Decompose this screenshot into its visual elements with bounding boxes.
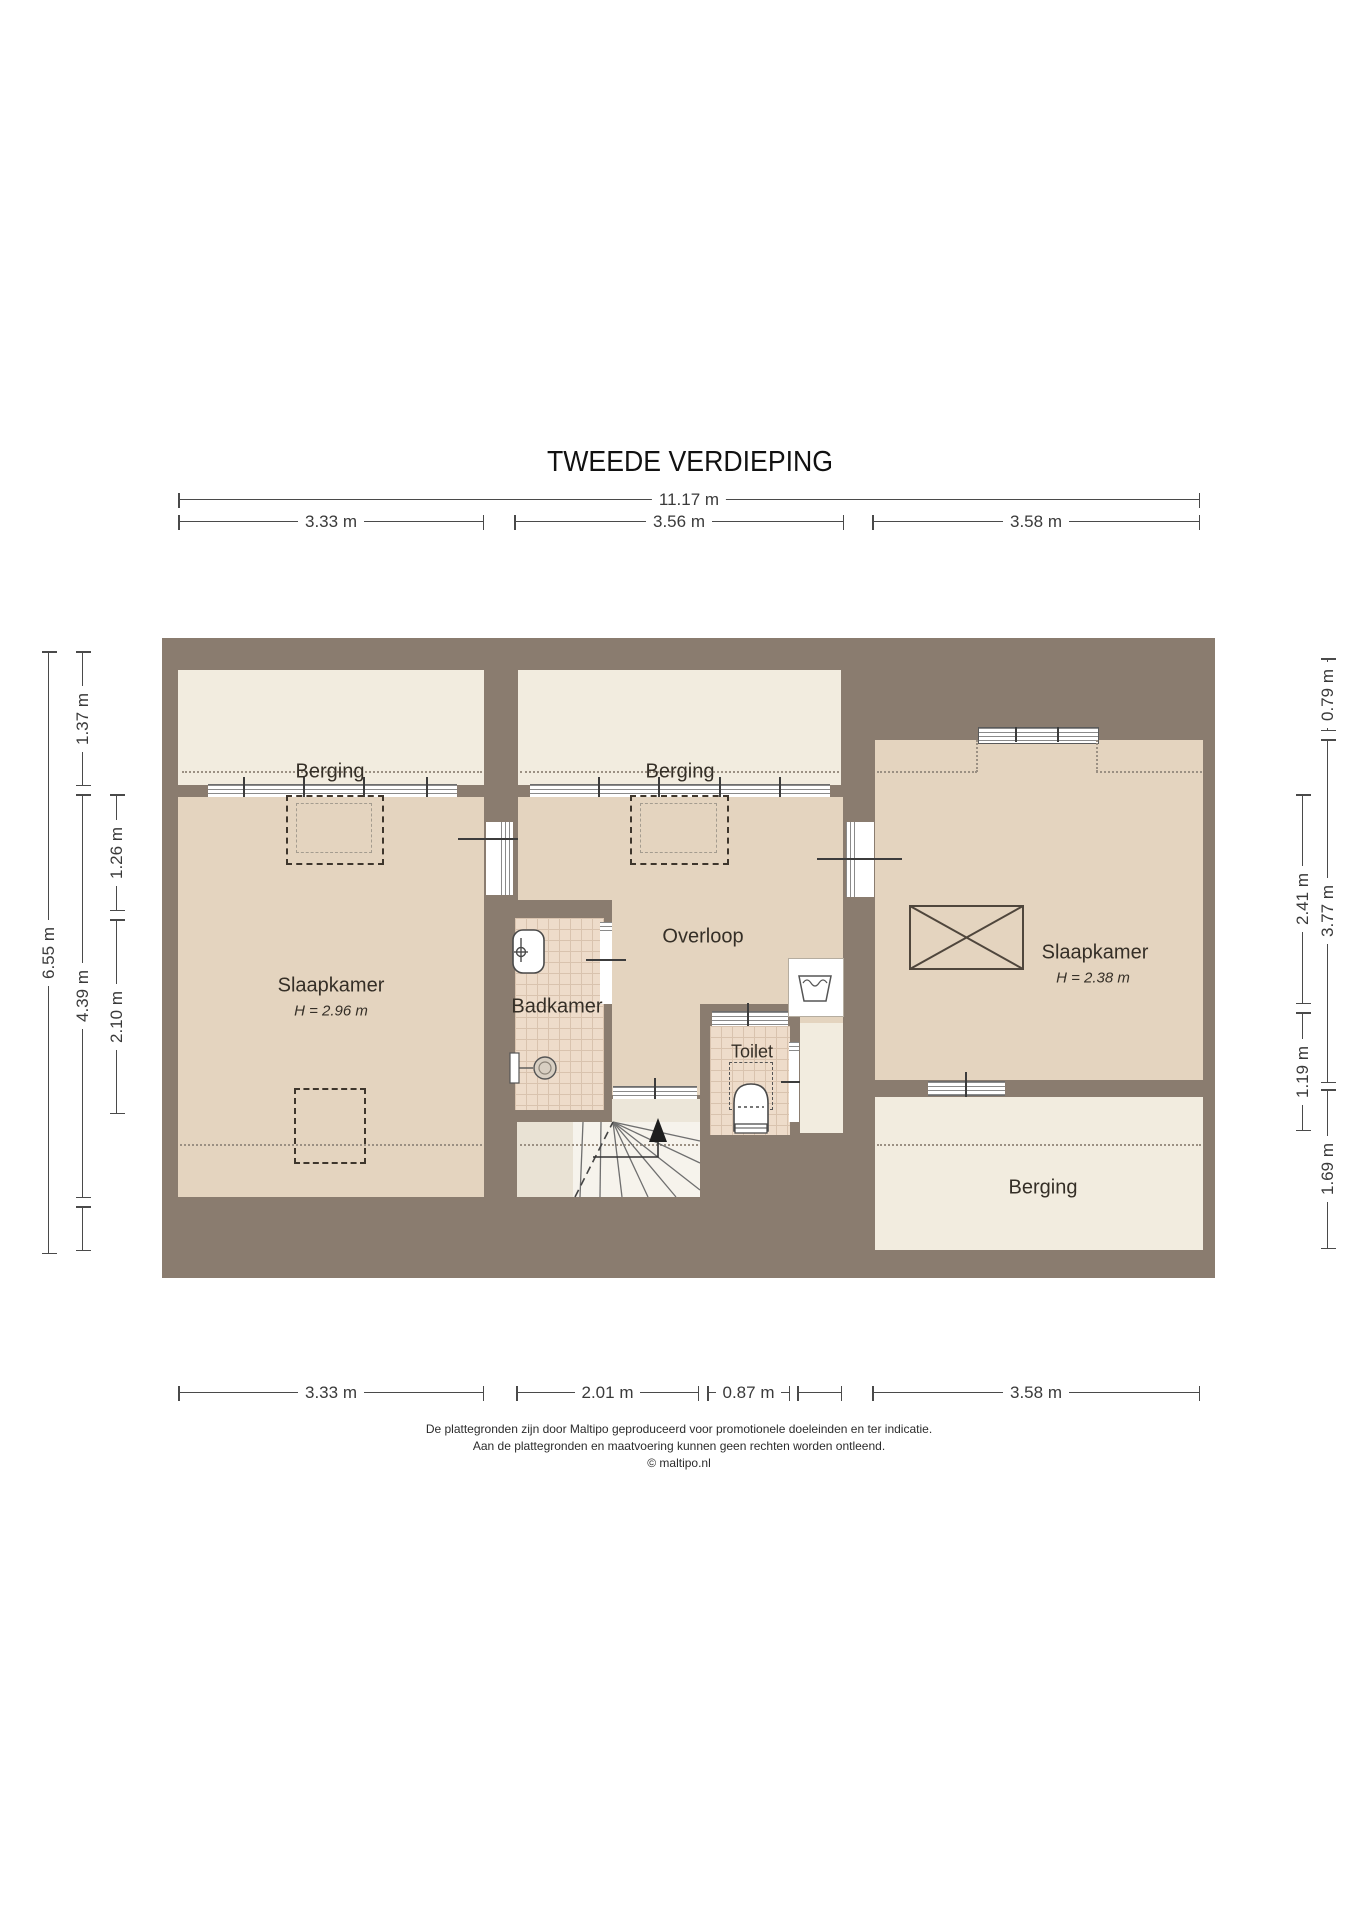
roof-window-x-icon [910,906,1023,969]
footer-disclaimer-1: De plattegronden zijn door Maltipo gepro… [129,1422,1229,1436]
label-slaapkamer-right: Slaapkamer [1042,942,1149,965]
dim-top-total: 11.17 m [179,499,1199,500]
dim-left-1: 1.37 m [82,652,83,785]
label-berging-left: Berging [296,761,365,784]
laundry-symbol-icon [799,976,831,1001]
dim-right-5: 1.19 m [1302,1013,1303,1130]
label-slaapkamer-right-height: H = 2.38 m [1056,970,1130,987]
dim-bottom-1: 3.33 m [179,1392,483,1393]
stair-treads-icon [580,1122,700,1197]
dim-bottom-2: 2.01 m [517,1392,698,1393]
dim-left-total: 6.55 m [48,652,49,1253]
dim-bottom-3: 0.87 m [708,1392,789,1393]
label-badkamer: Badkamer [511,996,602,1019]
footer-disclaimer-2: Aan de plattegronden en maatvoering kunn… [129,1439,1229,1453]
dim-left-3 [82,1207,83,1250]
label-berging-mid: Berging [646,761,715,784]
label-slaapkamer-left: Slaapkamer [278,975,385,998]
shower-icon [510,1053,556,1083]
label-slaapkamer-left-height: H = 2.96 m [294,1003,368,1020]
floorplan-page: TWEEDE VERDIEPING [0,0,1358,1920]
dim-left-4: 1.26 m [116,795,117,910]
dim-right-3: 1.69 m [1327,1090,1328,1248]
dim-right-1: 0.79 m [1327,659,1328,730]
toilet-icon [734,1084,768,1133]
dim-right-2: 3.77 m [1327,740,1328,1082]
sink-icon [513,930,544,973]
dim-left-5: 2.10 m [116,920,117,1113]
label-berging-bottom: Berging [1009,1177,1078,1200]
dim-top-left: 3.33 m [179,521,483,522]
dim-right-4: 2.41 m [1302,795,1303,1003]
label-toilet: Toilet [731,1042,773,1063]
footer-copyright: © maltipo.nl [129,1456,1229,1470]
dim-top-mid: 3.56 m [515,521,843,522]
fixtures-layer [0,0,1358,1920]
label-overloop: Overloop [662,926,743,949]
dim-bottom-4 [798,1392,841,1393]
dim-left-2: 4.39 m [82,795,83,1197]
dim-bottom-5: 3.58 m [873,1392,1199,1393]
dim-top-right: 3.58 m [873,521,1199,522]
